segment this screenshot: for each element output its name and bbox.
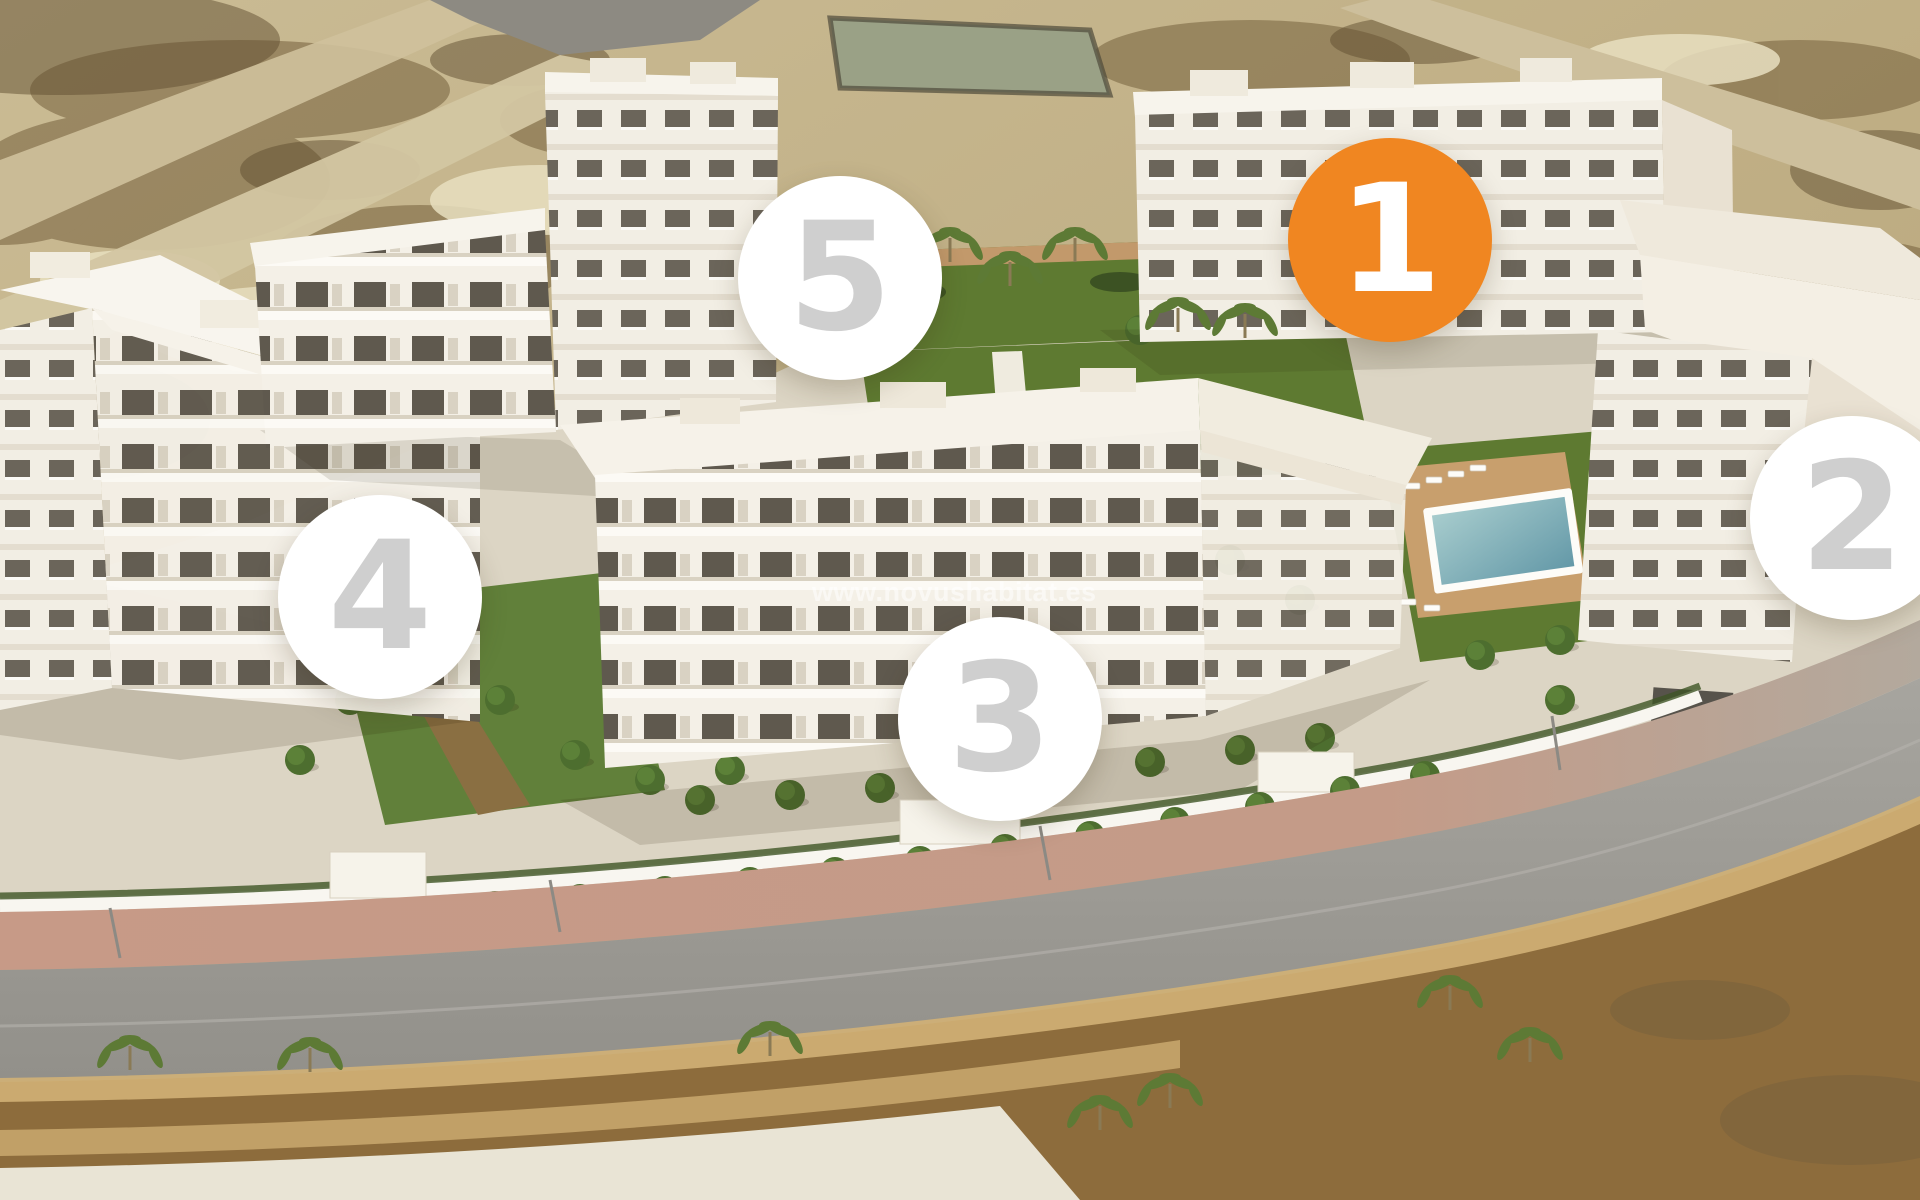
badge-3-number: 3 bbox=[948, 644, 1052, 794]
badge-4-number: 4 bbox=[328, 522, 432, 672]
badge-3[interactable]: 3 bbox=[898, 617, 1102, 821]
badge-5-number: 5 bbox=[788, 203, 892, 353]
watermark: www.novushabitat.es bbox=[812, 577, 1122, 608]
sports-platform bbox=[830, 18, 1110, 95]
aerial-render: www.novushabitat.es 1 2 3 4 5 bbox=[0, 0, 1920, 1200]
badge-1[interactable]: 1 bbox=[1288, 138, 1492, 342]
badge-2-number: 2 bbox=[1800, 443, 1904, 593]
badge-1-number: 1 bbox=[1338, 165, 1442, 315]
badge-4[interactable]: 4 bbox=[278, 495, 482, 699]
badge-5[interactable]: 5 bbox=[738, 176, 942, 380]
